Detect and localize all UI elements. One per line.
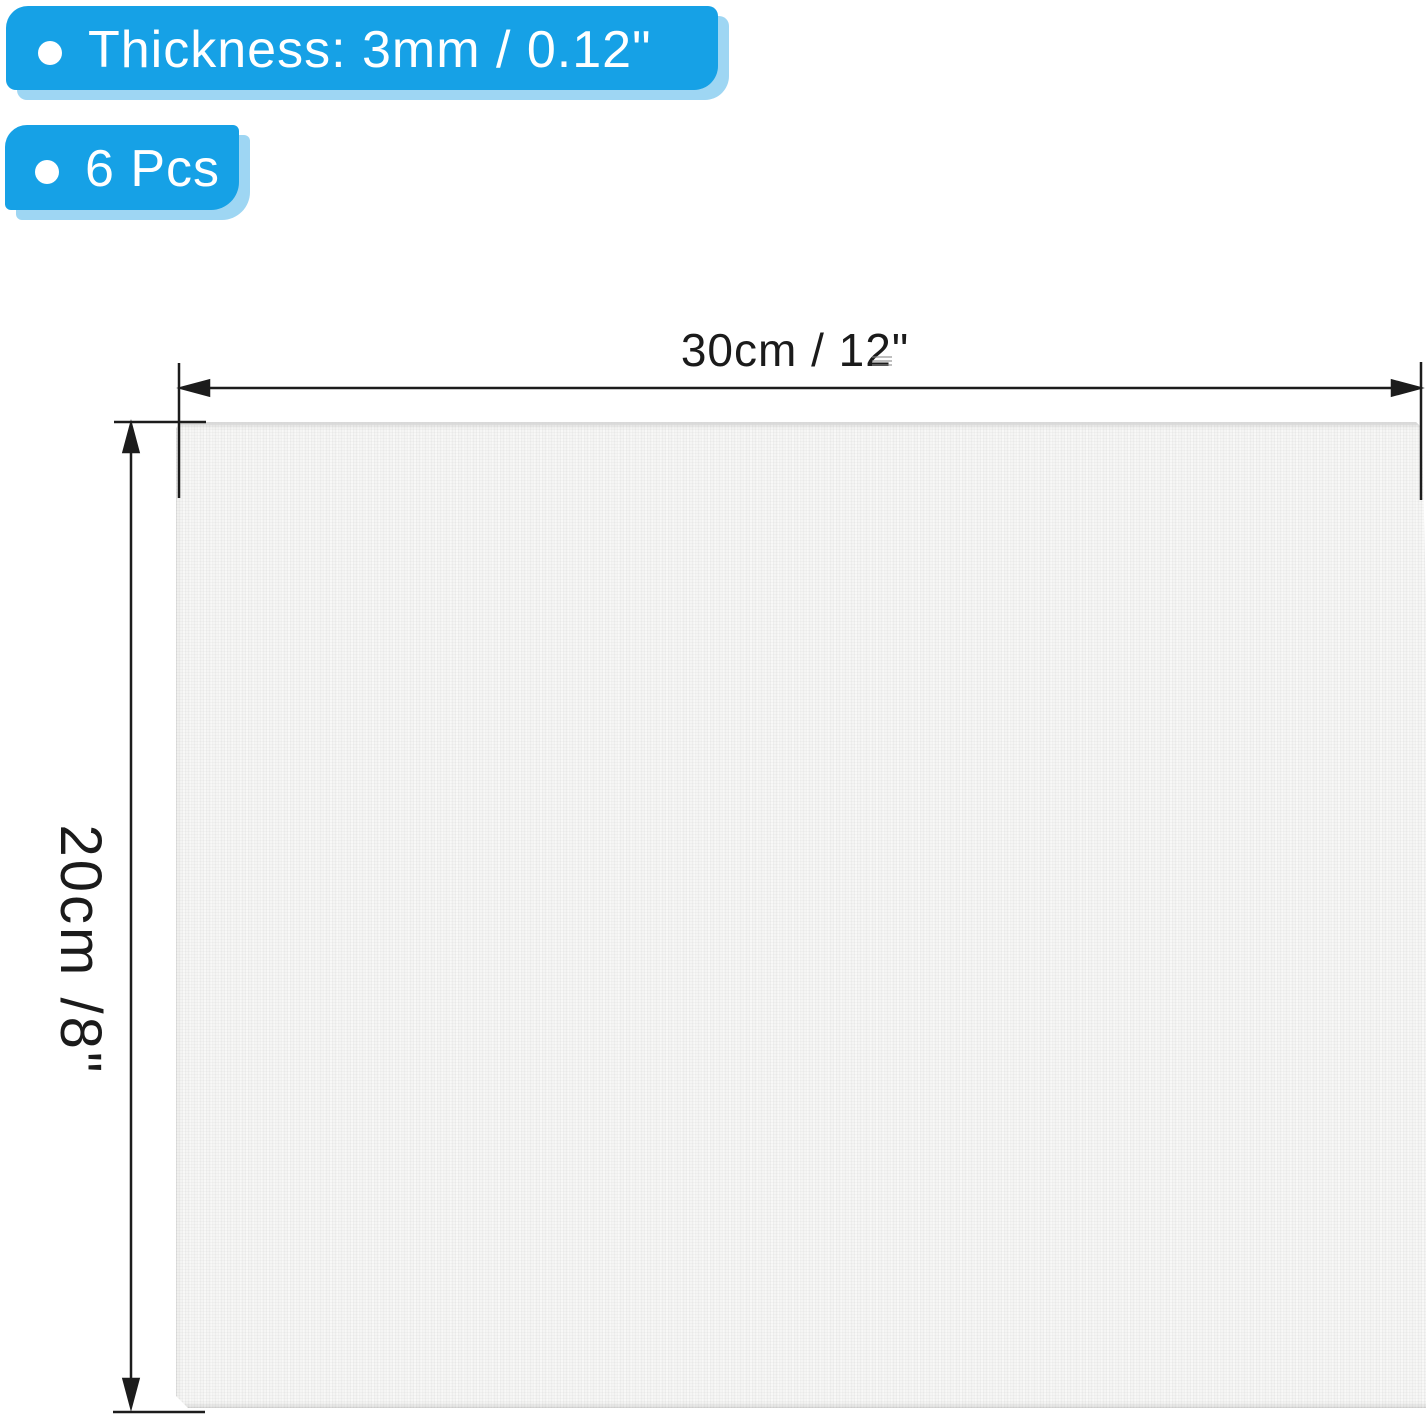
print-artifact: [872, 356, 892, 366]
width-arrow-right-icon: [1392, 381, 1420, 396]
product-dimension-diagram: Thickness: 3mm / 0.12" 6 Pcs 30cm / 12" …: [0, 0, 1426, 1416]
dimension-lines: [0, 0, 1426, 1416]
width-arrow-left-icon: [181, 381, 209, 396]
height-arrow-down-icon: [124, 1379, 139, 1407]
height-dimension-label: 20cm /8": [49, 780, 113, 1120]
height-arrow-up-icon: [124, 424, 139, 452]
width-dimension-label: 30cm / 12": [595, 324, 995, 377]
